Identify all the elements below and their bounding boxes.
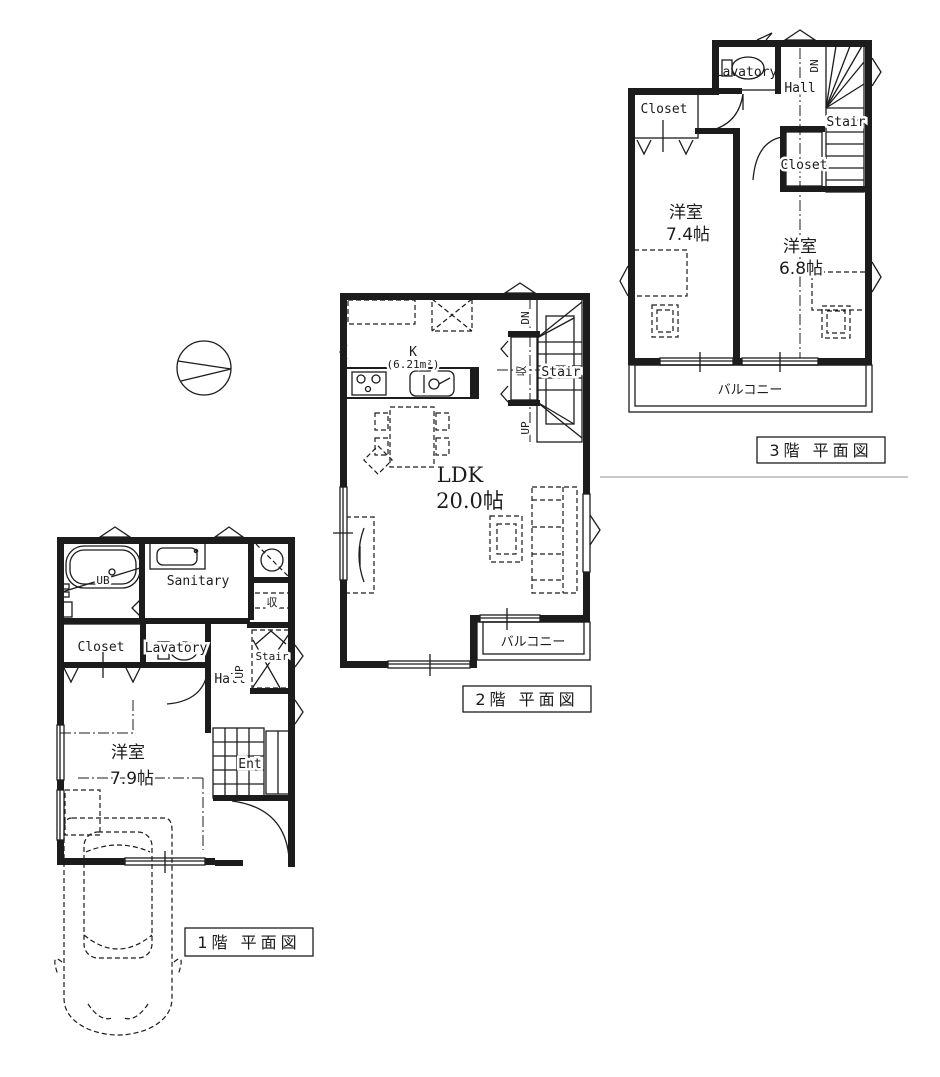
label-balcony-2f: バルコニー xyxy=(501,635,566,650)
caption-3f-text: 3階 平面図 xyxy=(769,441,872,460)
label-dn-3f: DN xyxy=(808,59,821,72)
kitchen-counter-2f xyxy=(345,368,478,398)
window-2f-left xyxy=(333,487,353,580)
window-2f-bottom xyxy=(388,654,470,676)
label-stair-1f: Stair xyxy=(255,650,288,663)
door-arc-3f-hall xyxy=(702,94,743,132)
window-1f-bottom xyxy=(125,851,205,873)
label-ub-1f: UB xyxy=(96,574,110,587)
label-lavatory-1f: Lavatory xyxy=(145,641,208,656)
sofa-2f xyxy=(532,487,577,593)
floorplan-canvas: Lavatory Hall DN Stair Closet Closet 洋室 … xyxy=(0,0,940,1077)
tv-board-2f xyxy=(346,517,374,593)
label-storage-2f: 収 xyxy=(515,366,528,377)
window-1f-left-b xyxy=(57,790,64,840)
window-3f-right xyxy=(742,352,818,372)
caption-1f: 1階 平面図 xyxy=(185,928,313,956)
floor-2-plan: K (6.21m²) LDK 20.0帖 収 Stair DN UP バルコニー… xyxy=(333,283,600,712)
washer-space-1f xyxy=(253,541,291,579)
label-bedroom-size-1f: 7.9帖 xyxy=(110,769,154,789)
label-bedroom-b-3f: 洋室 xyxy=(783,237,817,257)
door-arc-1f-bedroom xyxy=(167,668,208,704)
label-stair-3f: Stair xyxy=(826,115,865,130)
label-bedroom-1f: 洋室 xyxy=(111,743,145,763)
window-2f-balcony xyxy=(480,608,540,630)
label-kitchen-size-2f: (6.21m²) xyxy=(387,358,440,371)
label-up-1f: UP xyxy=(233,665,246,679)
window-3f-left xyxy=(660,352,733,372)
caption-3f: 3階 平面図 xyxy=(757,437,885,463)
floor-3-plan: Lavatory Hall DN Stair Closet Closet 洋室 … xyxy=(620,30,885,463)
door-arc-3f-bedroom-b xyxy=(753,137,782,180)
label-closet-b-3f: Closet xyxy=(781,158,828,173)
label-sanitary-1f: Sanitary xyxy=(167,574,230,589)
label-bedroom-a-3f: 洋室 xyxy=(669,203,703,223)
sanitary-1f xyxy=(150,543,205,569)
label-storage-1f: 収 xyxy=(267,596,278,609)
caption-2f-text: 2階 平面図 xyxy=(475,690,578,709)
label-lavatory-3f: Lavatory xyxy=(715,65,778,80)
furniture-3f xyxy=(634,250,866,338)
label-closet-a-3f: Closet xyxy=(641,102,688,117)
door-arc-1f-entrance xyxy=(232,801,289,858)
north-compass-icon xyxy=(177,341,231,395)
label-ldk-2f: LDK xyxy=(437,463,484,487)
caption-1f-text: 1階 平面図 xyxy=(197,933,300,952)
sink-icon xyxy=(410,371,454,396)
label-stair-2f: Stair xyxy=(541,365,580,380)
car-icon xyxy=(55,818,181,1035)
window-2f-right xyxy=(583,494,600,572)
label-dn-2f: DN xyxy=(519,311,532,324)
floor-1-plan: UB Sanitary 収 Closet Lavatory Hall Stair… xyxy=(55,527,313,1035)
floorplan-drawing: Lavatory Hall DN Stair Closet Closet 洋室 … xyxy=(0,0,940,1077)
label-hall-3f: Hall xyxy=(784,81,815,96)
label-ldk-size-2f: 20.0帖 xyxy=(436,489,504,513)
label-balcony-3f: バルコニー xyxy=(718,383,783,398)
storage-xbox-2f xyxy=(432,299,472,331)
label-entrance-1f: Ent xyxy=(238,757,261,772)
label-up-2f: UP xyxy=(519,421,532,435)
label-bedroom-a-size-3f: 7.4帖 xyxy=(666,225,710,245)
label-bedroom-b-size-3f: 6.8帖 xyxy=(779,259,823,279)
caption-2f: 2階 平面図 xyxy=(463,686,591,712)
label-closet-1f: Closet xyxy=(78,640,125,655)
